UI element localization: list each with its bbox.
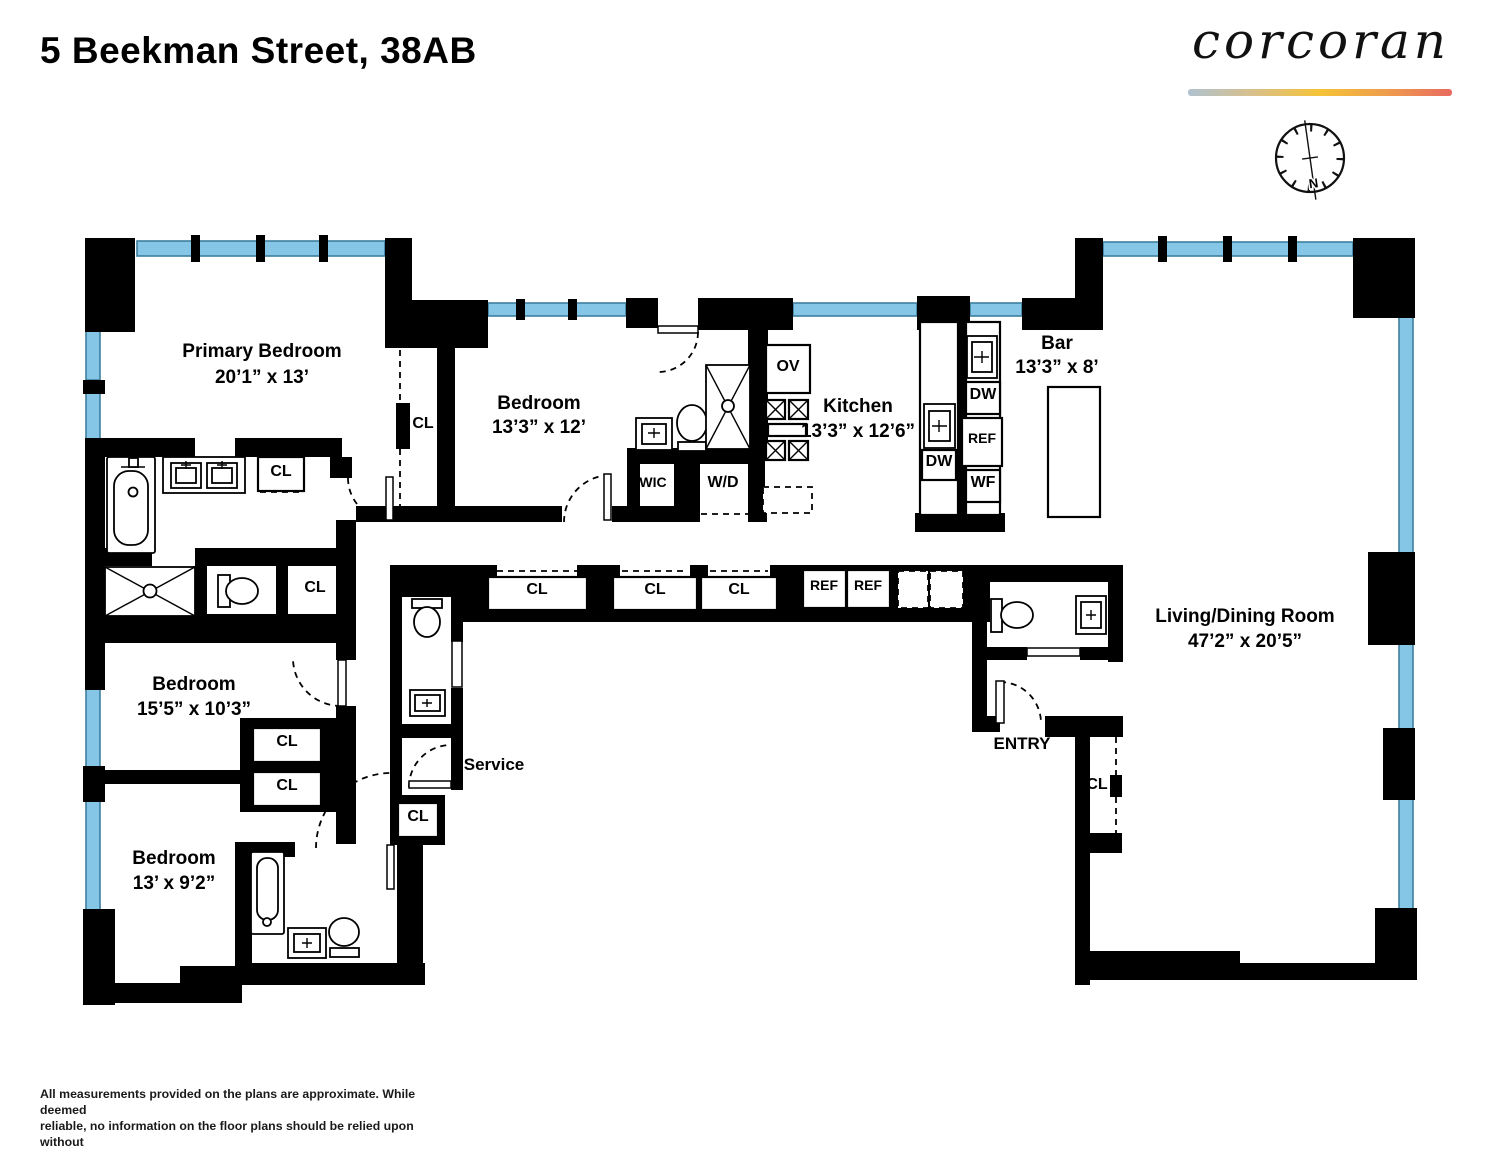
- closet-label: CL: [412, 415, 434, 432]
- room-label-primary-name: Primary Bedroom: [182, 341, 341, 362]
- room-label-bedroom3-name: Bedroom: [152, 674, 235, 695]
- room-label-kitchen-name: Kitchen: [823, 396, 893, 417]
- room-label-primary-dims: 20’1” x 13’: [215, 367, 309, 388]
- bedroom4-toilet-symbol: [329, 918, 359, 957]
- primary-shower-symbol: [105, 567, 195, 616]
- closet-label: CL: [728, 581, 750, 598]
- entry-door-leaf: [996, 681, 1004, 723]
- closet-label: CL: [644, 581, 666, 598]
- powder-door-leaf: [1027, 648, 1080, 656]
- wic-label: WIC: [639, 474, 666, 490]
- kitchen-sink-left-symbol: [924, 404, 955, 448]
- dishwasher-label: DW: [926, 453, 954, 470]
- hall-pantry-1: [898, 571, 928, 608]
- service-door-leaf: [409, 781, 451, 788]
- primary-toilet-symbol: [218, 575, 258, 607]
- service-sink-symbol: [410, 690, 445, 716]
- room-label-bar-dims: 13’3” x 8’: [1015, 357, 1098, 378]
- room-label-living-name: Living/Dining Room: [1155, 606, 1334, 627]
- closet-label: CL: [526, 581, 548, 598]
- refrigerator-label: REF: [968, 430, 996, 446]
- room-label-living-dims: 47’2” x 20’5”: [1188, 631, 1302, 652]
- room-label-bedroom4-dims: 13’ x 9’2”: [133, 873, 215, 894]
- room-label-bedroom2-dims: 13’3” x 12’: [492, 417, 586, 438]
- service-bath-door-leaf: [452, 641, 462, 687]
- closet-label: CL: [276, 733, 298, 750]
- bedroom4-sink-symbol: [288, 928, 326, 958]
- closet-label: CL: [407, 808, 429, 825]
- entry-toilet-symbol: [991, 599, 1033, 632]
- refrigerator-label: REF: [810, 577, 838, 593]
- room-label-service: Service: [464, 755, 525, 774]
- bedroom3-door-leaf: [338, 660, 346, 706]
- wine-fridge-label: WF: [971, 474, 996, 491]
- dishwasher-label: DW: [970, 386, 998, 403]
- room-label-bedroom4-name: Bedroom: [132, 848, 215, 869]
- room-label-entry: ENTRY: [994, 734, 1052, 753]
- hall-pantry-2: [930, 571, 963, 608]
- disclaimer: All measurements provided on the plans a…: [40, 1086, 460, 1152]
- primary-vanity-symbol: [163, 457, 245, 493]
- primary-tub-symbol: [107, 457, 155, 553]
- room-label-kitchen-dims: 13’3” x 12’6”: [801, 421, 915, 442]
- primary-door-leaf: [386, 477, 393, 520]
- closet-label: CL: [270, 463, 292, 480]
- room-label-bar-name: Bar: [1041, 333, 1073, 354]
- wd-label: W/D: [707, 474, 738, 491]
- room-label-bedroom2-name: Bedroom: [497, 393, 580, 414]
- refrigerator-label: REF: [854, 577, 882, 593]
- room-label-bedroom3-dims: 15’5” x 10’3”: [137, 699, 251, 720]
- entry-sink-symbol: [1076, 596, 1106, 634]
- bedroom2-bath-door-leaf: [658, 326, 698, 333]
- fixtures: [105, 336, 1106, 958]
- bar-island: [1048, 387, 1100, 517]
- bedroom2-door-leaf: [604, 474, 611, 520]
- service-toilet-symbol: [412, 599, 442, 637]
- compass-icon: N: [1276, 119, 1344, 200]
- bedroom2-sink-symbol: [636, 418, 672, 450]
- compass-north-label: N: [1308, 175, 1319, 191]
- bedroom2-shower-symbol: [706, 365, 750, 449]
- closet-label: CL: [276, 777, 298, 794]
- oven-label: OV: [776, 358, 799, 375]
- kitchen-sink-right-symbol: [967, 336, 997, 378]
- closet-label: CL: [304, 579, 326, 596]
- closet-label: CL: [1086, 776, 1108, 793]
- floorplan-drawing: Primary Bedroom 20’1” x 13’ Bedroom 13’3…: [0, 0, 1491, 1152]
- floorplan-page: 5 Beekman Street, 38AB corcoran: [0, 0, 1491, 1152]
- bedroom4-door-leaf: [387, 845, 394, 889]
- kitchen-dashed-cabinet: [763, 487, 812, 513]
- bedroom4-tub-symbol: [251, 852, 284, 934]
- bedroom2-toilet-symbol: [677, 405, 707, 451]
